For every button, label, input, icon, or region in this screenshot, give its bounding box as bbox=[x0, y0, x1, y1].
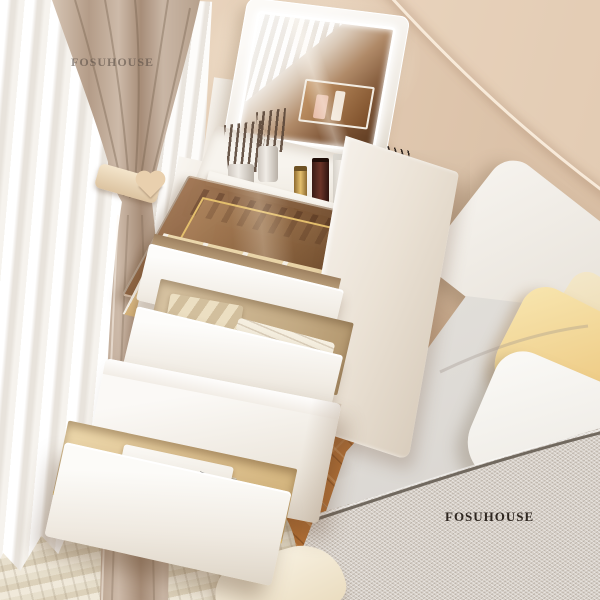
bedroom-vanity-photo: FOSUHOUSE FOSUHOUSE bbox=[0, 0, 600, 600]
watermark-bottom-right: FOSUHOUSE bbox=[445, 509, 534, 525]
watermark-top-left: FOSUHOUSE bbox=[71, 55, 154, 70]
brush-cup-small bbox=[258, 146, 278, 182]
